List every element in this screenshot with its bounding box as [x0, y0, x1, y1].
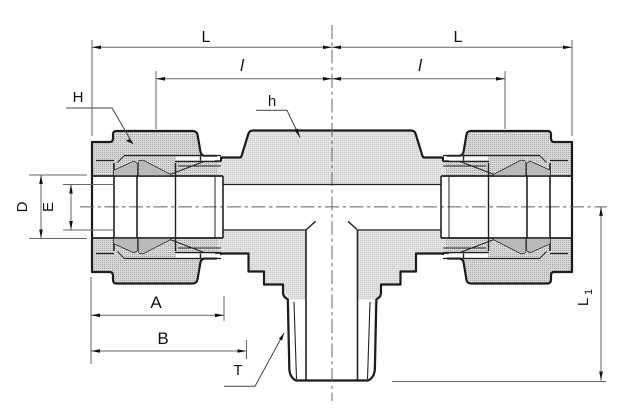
svg-text:A: A	[150, 293, 162, 312]
svg-text:h: h	[268, 93, 276, 110]
svg-text:L: L	[575, 298, 592, 306]
svg-text:D: D	[14, 201, 31, 212]
svg-text:T: T	[233, 362, 242, 379]
svg-text:L: L	[202, 29, 211, 46]
svg-text:E: E	[40, 202, 57, 212]
svg-text:L: L	[454, 29, 463, 46]
svg-text:1: 1	[583, 289, 595, 295]
svg-text:H: H	[73, 89, 84, 106]
svg-text:B: B	[157, 329, 168, 348]
